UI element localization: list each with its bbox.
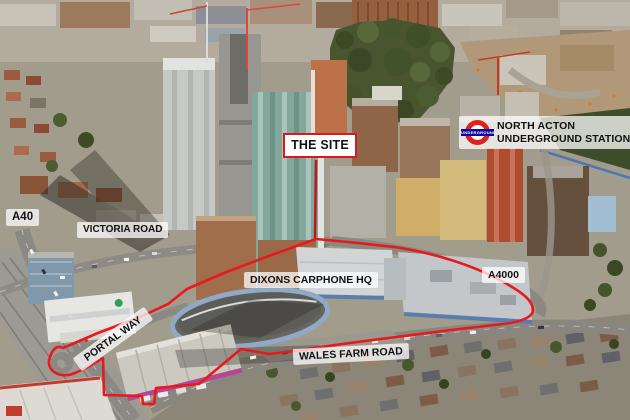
victoria-road-label: VICTORIA ROAD — [77, 222, 168, 238]
dixons-hq-text: DIXONS CARPHONE HQ — [250, 274, 372, 286]
a4000-label: A4000 — [482, 267, 525, 283]
a4000-text: A4000 — [488, 269, 519, 281]
underground-roundel-icon: UNDERGROUND — [464, 119, 491, 146]
the-site-label: THE SITE — [283, 133, 357, 158]
aerial-site-map: THE SITE UNDERGROUND NORTH ACTON UNDERGR… — [0, 0, 630, 420]
a40-text: A40 — [12, 211, 33, 223]
a40-label: A40 — [6, 209, 39, 226]
the-site-text: THE SITE — [291, 138, 349, 152]
station-line2: UNDERGROUND STATION — [497, 133, 630, 145]
victoria-road-text: VICTORIA ROAD — [83, 224, 162, 235]
station-label: UNDERGROUND NORTH ACTON UNDERGROUND STAT… — [459, 116, 630, 149]
station-line1: NORTH ACTON — [497, 120, 630, 132]
station-label-text: NORTH ACTON UNDERGROUND STATION — [497, 120, 630, 144]
roundel-bar: UNDERGROUND — [461, 129, 494, 136]
dixons-hq-label: DIXONS CARPHONE HQ — [244, 272, 378, 288]
wales-farm-road-text: WALES FARM ROAD — [299, 345, 403, 362]
